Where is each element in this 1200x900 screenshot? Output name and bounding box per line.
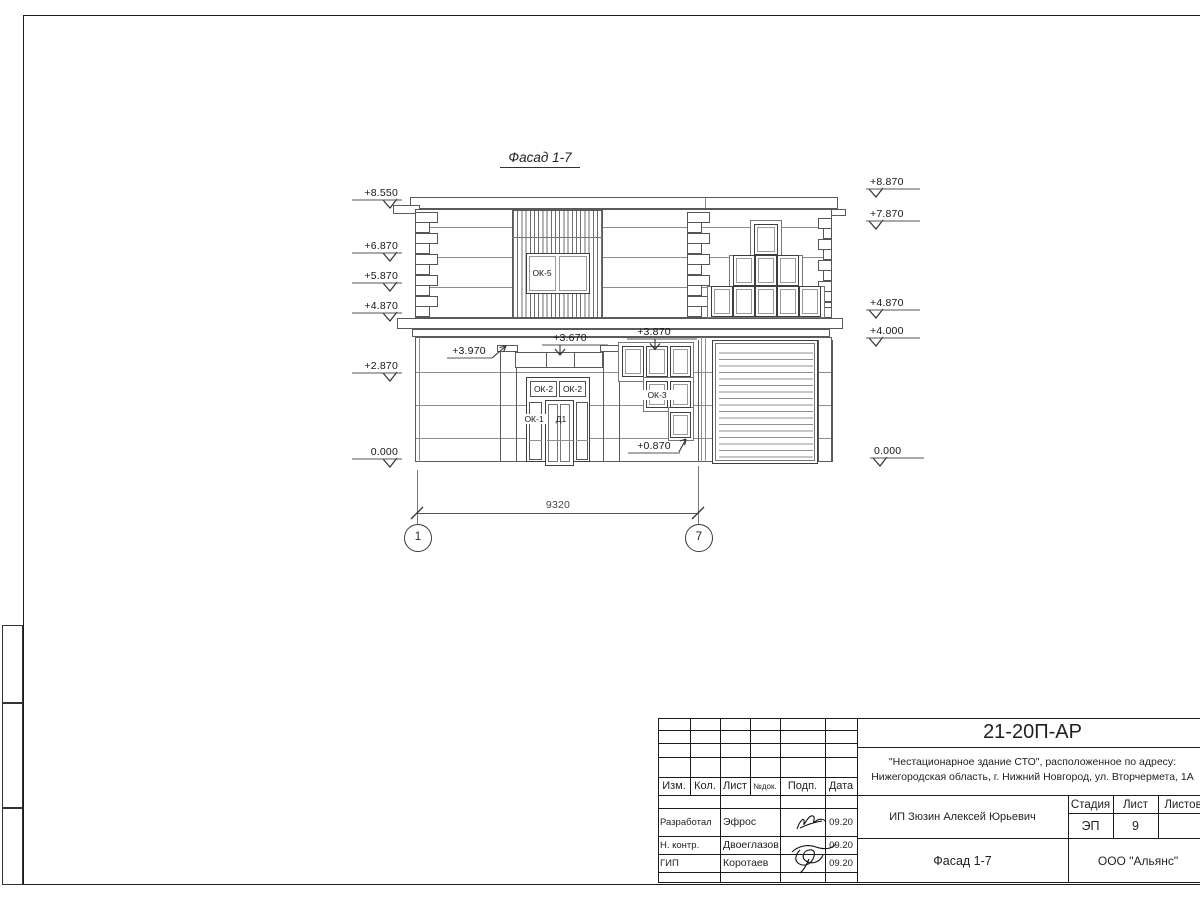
elevation-mark: +4.000 xyxy=(870,324,930,338)
roller-slats xyxy=(719,347,813,459)
quoin-brick xyxy=(687,285,702,296)
quoin-brick xyxy=(823,249,832,260)
window-ok1-rail xyxy=(529,440,542,441)
quoin-brick xyxy=(415,264,430,275)
tb-col-list: Лист xyxy=(720,777,750,795)
ok3-pane xyxy=(622,346,644,377)
tb-col-data: Дата xyxy=(825,777,857,795)
quoin-brick xyxy=(415,243,430,254)
extension-line-7 xyxy=(698,466,699,524)
sheets-total-label: Листов xyxy=(1158,796,1200,813)
elevation-mark: +6.870 xyxy=(330,239,398,253)
entrance-pilaster-left xyxy=(500,352,517,462)
interfloor-band-lip xyxy=(412,329,830,337)
window-label-ok2-left: ОК-2 xyxy=(530,384,557,394)
interfloor-band xyxy=(397,318,843,329)
coping-joint xyxy=(705,198,706,208)
elevation-mark: +7.870 xyxy=(870,207,930,221)
garage-roller-door xyxy=(712,340,818,464)
project-line1: "Нестационарное здание СТО", расположенн… xyxy=(857,755,1200,770)
elevation-mark: +3.870 xyxy=(628,325,680,339)
project-description: "Нестационарное здание СТО", расположенн… xyxy=(857,749,1200,795)
elevation-mark: 0.000 xyxy=(330,445,398,459)
sheet-value: 9 xyxy=(1113,813,1158,838)
pyramid-pane xyxy=(755,255,777,286)
entrance-door-d1 xyxy=(545,400,574,466)
window-ok1 xyxy=(529,402,542,460)
ok3-pane xyxy=(670,346,691,377)
margin-box-2 xyxy=(2,703,23,808)
signer-date: 09.20 xyxy=(825,854,857,872)
pilaster-cap-left xyxy=(497,345,518,352)
tb-col-podp: Подп. xyxy=(780,777,825,795)
elevation-mark: +0.870 xyxy=(629,439,679,453)
margin-box-1 xyxy=(2,625,23,703)
ok3-pane xyxy=(670,412,691,438)
signer-role: ГИП xyxy=(660,854,718,872)
dimension-value: 9320 xyxy=(520,498,596,512)
drawing-title: Фасад 1-7 xyxy=(500,150,580,168)
door-sidelight xyxy=(576,402,588,460)
door-label-d1: Д1 xyxy=(550,414,572,424)
company-name: ООО "Альянс" xyxy=(1068,838,1200,883)
sidelight-rail xyxy=(576,440,588,441)
signer-role: Разработал xyxy=(660,808,718,836)
elevation-mark: +4.870 xyxy=(870,296,930,310)
stage-label: Стадия xyxy=(1068,796,1113,813)
client-name: ИП Зюзин Алексей Юрьевич xyxy=(857,796,1068,838)
drawing-sheet: Фасад 1-7 ОК-5 xyxy=(0,0,1200,900)
sheets-total-value xyxy=(1158,813,1200,838)
wall-edge-line xyxy=(419,337,420,462)
elevation-mark: 0.000 xyxy=(874,444,934,458)
doc-number: 21-20П-АР xyxy=(857,718,1200,747)
pyramid-pane xyxy=(755,286,777,317)
pyramid-pane xyxy=(733,286,755,317)
signer-date: 09.20 xyxy=(825,836,857,854)
window-label-ok2-right: ОК-2 xyxy=(559,384,586,394)
axis-bubble-1: 1 xyxy=(404,524,432,552)
extension-line-1 xyxy=(417,470,418,524)
signer-name: Эфрос xyxy=(723,808,778,836)
signer-date: 09.20 xyxy=(825,808,857,836)
margin-box-3 xyxy=(2,808,23,885)
tb-col-ndok: №док. xyxy=(750,777,780,795)
pyramid-pane xyxy=(733,255,755,286)
axis-bubble-7: 7 xyxy=(685,524,713,552)
quoin-brick xyxy=(415,222,430,233)
pyramid-pane xyxy=(754,224,778,255)
quoin-brick xyxy=(823,228,832,239)
elevation-mark: +5.870 xyxy=(330,269,398,283)
quoin-brick xyxy=(687,306,702,317)
tb-col-kol: Кол. xyxy=(690,777,720,795)
project-line2: Нижегородская область, г. Нижний Новгоро… xyxy=(857,770,1200,785)
stage-value: ЭП xyxy=(1068,813,1113,838)
quoin-brick xyxy=(823,270,832,281)
signer-name: Двоеглазов xyxy=(723,836,780,854)
elevation-mark: +8.870 xyxy=(870,175,930,189)
quoin-brick xyxy=(687,243,702,254)
parapet-coping xyxy=(410,197,838,209)
window-label-ok5: ОК-5 xyxy=(528,268,556,278)
garage-pilaster-right xyxy=(818,340,833,462)
entrance-frieze xyxy=(515,352,603,368)
elevation-mark: +2.870 xyxy=(330,359,398,373)
pyramid-pane xyxy=(799,286,821,317)
quoin-brick xyxy=(415,306,430,317)
signer-role: Н. контр. xyxy=(660,836,718,854)
sheet-label: Лист xyxy=(1113,796,1158,813)
dimension-line xyxy=(417,513,699,514)
garage-pilaster-left xyxy=(698,340,713,462)
pyramid-pane xyxy=(777,255,799,286)
drawing-name-cell: Фасад 1-7 xyxy=(857,838,1068,883)
elevation-mark: +8.550 xyxy=(330,186,398,200)
signer-name: Коротаев xyxy=(723,854,780,872)
quoin-brick xyxy=(687,222,702,233)
quoin-brick xyxy=(415,285,430,296)
window-label-ok3: ОК-3 xyxy=(640,390,674,400)
pyramid-pane xyxy=(711,286,733,317)
elevation-mark: +3.670 xyxy=(542,331,598,345)
slat-divider xyxy=(512,237,603,238)
quoin-brick xyxy=(687,264,702,275)
tb-col-izm: Изм. xyxy=(658,777,690,795)
pyramid-pane xyxy=(777,286,799,317)
window-label-ok1: ОК-1 xyxy=(521,414,547,424)
elevation-mark: +3.970 xyxy=(445,344,493,358)
ok3-pane xyxy=(646,346,668,377)
window-ok5-pane-right xyxy=(559,256,587,291)
elevation-mark: +4.870 xyxy=(330,299,398,313)
